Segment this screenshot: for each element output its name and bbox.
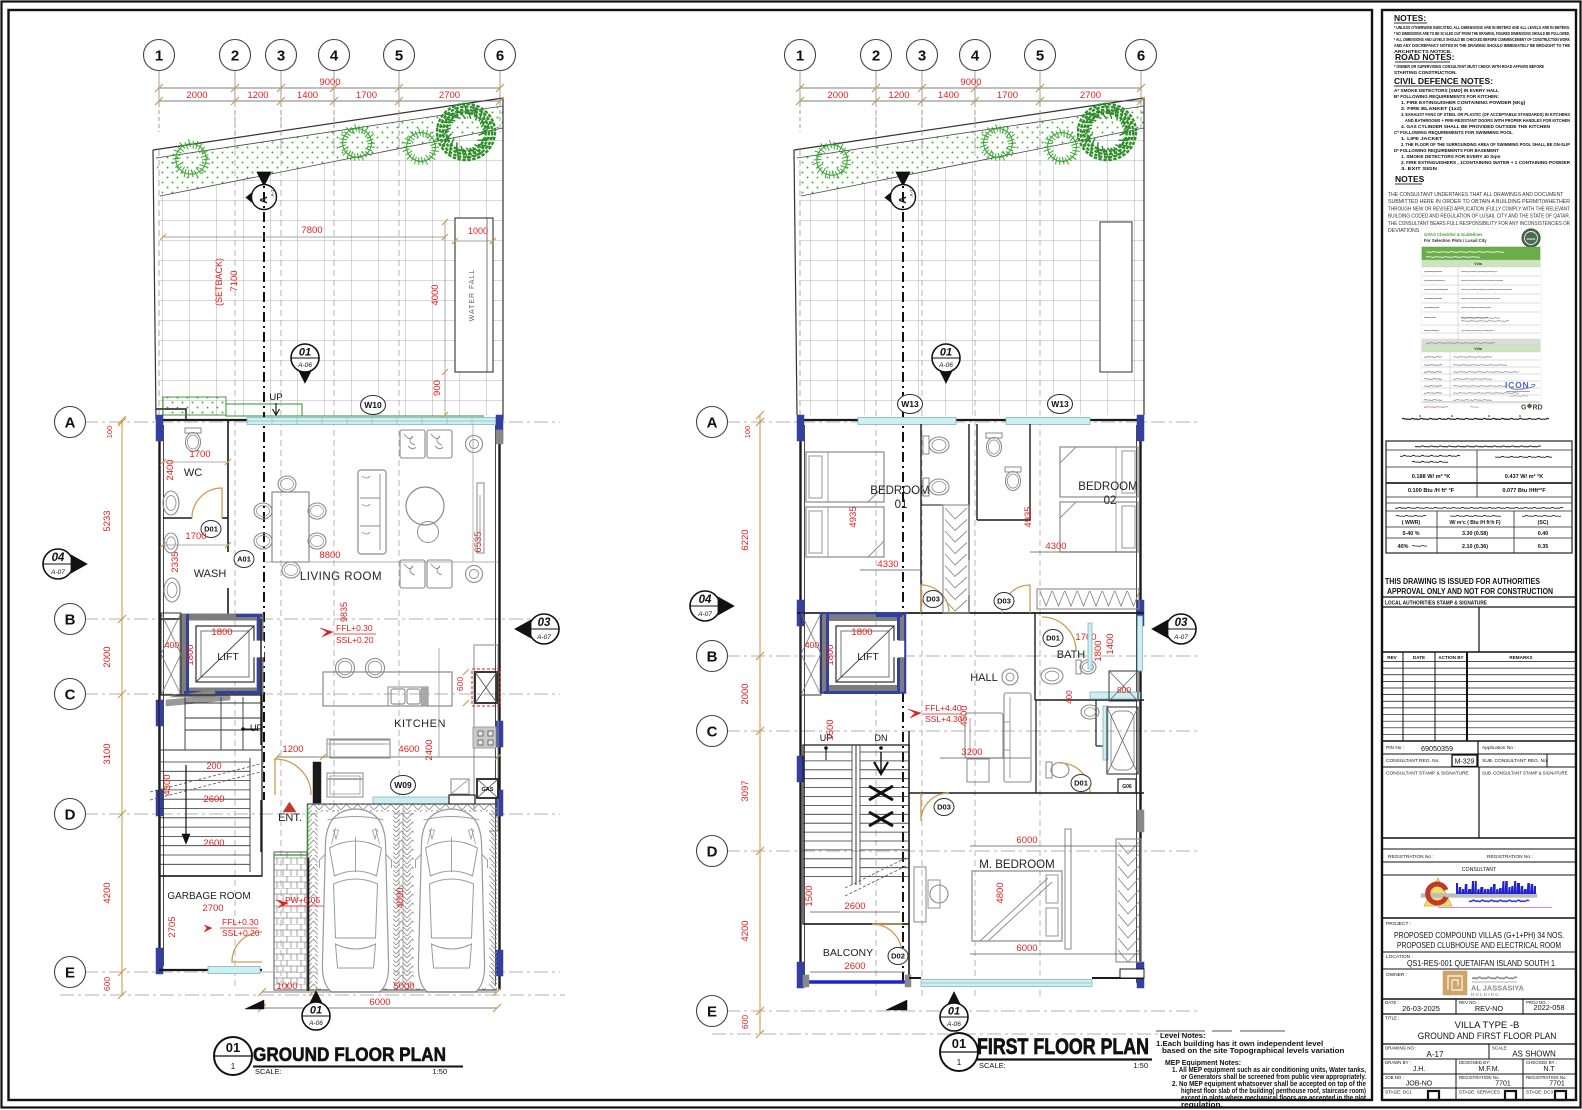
svg-text:01: 01 xyxy=(940,347,952,359)
svg-text:6000: 6000 xyxy=(1016,943,1037,954)
svg-text:4200: 4200 xyxy=(102,882,113,903)
svg-text:1: 1 xyxy=(957,1058,962,1067)
svg-text:9000: 9000 xyxy=(960,77,981,88)
svg-text:2. THE FLOOR OF THE SURROUNDI: 2. THE FLOOR OF THE SURROUNDING AREA OF … xyxy=(1401,142,1570,147)
svg-text:3200: 3200 xyxy=(961,747,982,758)
svg-text:TITLE :: TITLE : xyxy=(1385,1016,1399,1021)
svg-text:STAGE: DC1: STAGE: DC1 xyxy=(1385,1090,1412,1095)
svg-text:regulation.: regulation. xyxy=(1181,1100,1223,1109)
svg-text:2600: 2600 xyxy=(844,901,865,912)
svg-text:800: 800 xyxy=(1117,685,1131,695)
svg-text:69050359: 69050359 xyxy=(1421,744,1453,753)
svg-text:5000: 5000 xyxy=(393,981,414,992)
svg-text:C: C xyxy=(65,686,76,703)
svg-text:( WWR): ( WWR) xyxy=(1402,520,1421,526)
svg-text:A-06: A-06 xyxy=(938,362,953,369)
svg-text:GROUND FLOOR PLAN: GROUND FLOOR PLAN xyxy=(253,1044,446,1066)
svg-text:A* SMOKE DETECTORS [SMD] IN EV: A* SMOKE DETECTORS [SMD] IN EVERY HALL xyxy=(1394,88,1499,93)
svg-text:PIN No :: PIN No : xyxy=(1386,745,1404,751)
svg-text:4: 4 xyxy=(330,47,339,64)
svg-text:VILLA TYPE -B: VILLA TYPE -B xyxy=(1455,1020,1520,1031)
svg-text:7701: 7701 xyxy=(1495,1081,1511,1088)
svg-text:4300: 4300 xyxy=(1045,541,1066,552)
svg-text:2: 2 xyxy=(872,47,880,64)
svg-text:1800: 1800 xyxy=(851,627,872,638)
svg-text:GSAS: GSAS xyxy=(1527,237,1536,241)
svg-text:0.100 Btu /H ft² °F: 0.100 Btu /H ft² °F xyxy=(1408,487,1455,494)
svg-text:W09: W09 xyxy=(394,780,412,790)
svg-text:CHECKED BY :: CHECKED BY : xyxy=(1526,1060,1557,1065)
svg-text:A: A xyxy=(707,414,718,431)
svg-text:ENT.: ENT. xyxy=(278,812,302,824)
svg-text:PW+0.05: PW+0.05 xyxy=(285,895,320,905)
svg-text:Application No :: Application No : xyxy=(1482,745,1516,751)
svg-text:4800: 4800 xyxy=(995,882,1006,903)
svg-text:2022-058: 2022-058 xyxy=(1533,1003,1564,1012)
svg-text:1800: 1800 xyxy=(211,627,232,638)
svg-text:3: 3 xyxy=(277,47,285,64)
svg-text:JOB-NO: JOB-NO xyxy=(1406,1081,1433,1088)
svg-text:GARBAGE ROOM: GARBAGE ROOM xyxy=(167,891,250,902)
svg-text:M. BEDROOM: M. BEDROOM xyxy=(979,859,1054,871)
svg-text:1800: 1800 xyxy=(825,644,836,665)
svg-text:5233: 5233 xyxy=(102,510,113,531)
svg-text:* OWNER OR SUPERVISING CONSUL: * OWNER OR SUPERVISING CONSULTANT MUST C… xyxy=(1394,64,1544,69)
svg-text:SSL+4.30: SSL+4.30 xyxy=(925,714,963,724)
svg-text:7100: 7100 xyxy=(229,270,240,291)
svg-text:CONSULTANT STAMP & SIGNATURE: CONSULTANT STAMP & SIGNATURE xyxy=(1386,771,1469,777)
svg-text:RD: RD xyxy=(1533,405,1543,412)
svg-text:THE CONSULTANT BEARS FULL RESP: THE CONSULTANT BEARS FULL RESPONSIBILITY… xyxy=(1388,221,1570,227)
svg-text:BATH: BATH xyxy=(1057,649,1086,661)
svg-text:AND BATHROOMS + FIRE-RESISTANT: AND BATHROOMS + FIRE-RESISTANT DOORS WIT… xyxy=(1405,118,1571,123)
svg-text:WASH: WASH xyxy=(194,568,227,580)
svg-text:WATER FALL: WATER FALL xyxy=(469,269,476,322)
svg-text:W10: W10 xyxy=(364,400,382,410)
svg-text:0.40: 0.40 xyxy=(1538,531,1549,537)
svg-text:BUILDING CODED AND REGULATION: BUILDING CODED AND REGULATION OF LUSAIL … xyxy=(1388,214,1570,220)
svg-text:Villa: Villa xyxy=(1474,347,1483,351)
svg-text:1: 1 xyxy=(231,1062,236,1071)
svg-text:900: 900 xyxy=(432,380,443,396)
svg-text:1700: 1700 xyxy=(997,90,1018,101)
svg-text:* ALL DIMENSIONS AND LEVELS S: * ALL DIMENSIONS AND LEVELS SHOULD BE CH… xyxy=(1394,37,1570,42)
svg-text:A-07: A-07 xyxy=(50,569,65,576)
svg-text:8800: 8800 xyxy=(319,550,340,561)
svg-text:REGISTRATION No.: REGISTRATION No. xyxy=(1526,1075,1567,1080)
svg-text:2000: 2000 xyxy=(740,683,751,704)
svg-text:D03: D03 xyxy=(926,595,940,604)
svg-text:SSL+0.20: SSL+0.20 xyxy=(336,635,374,645)
svg-text:1. LIFE JACKET: 1. LIFE JACKET xyxy=(1401,136,1443,141)
svg-text:H O L D I N G: H O L D I N G xyxy=(1471,992,1499,997)
svg-text:ROAD NOTES:: ROAD NOTES: xyxy=(1395,52,1455,62)
svg-text:400: 400 xyxy=(1065,690,1074,704)
svg-text:4935: 4935 xyxy=(1023,506,1034,527)
svg-text:2. FIRE BLANKET (1x2): 2. FIRE BLANKET (1x2) xyxy=(1401,106,1462,111)
svg-text:2335: 2335 xyxy=(170,551,181,572)
svg-text:0.188 W/ m² °K: 0.188 W/ m² °K xyxy=(1412,473,1451,480)
svg-text:2700: 2700 xyxy=(439,90,460,101)
svg-text:03: 03 xyxy=(1175,617,1188,629)
svg-text:3. EXHAUST FANS OF STEEL OR P: 3. EXHAUST FANS OF STEEL OR PLASTIC (OF … xyxy=(1401,112,1570,117)
svg-text:J.H.: J.H. xyxy=(1413,1066,1426,1073)
svg-text:1000: 1000 xyxy=(276,981,297,992)
svg-text:2600: 2600 xyxy=(844,961,865,972)
svg-text:3.30 (0.58): 3.30 (0.58) xyxy=(1462,531,1488,537)
svg-text:SSL+0.20: SSL+0.20 xyxy=(222,928,260,938)
svg-text:For Selection Plots / Lusail C: For Selection Plots / Lusail City xyxy=(1424,238,1487,243)
svg-text:600: 600 xyxy=(455,677,465,691)
svg-text:PROJECT :: PROJECT : xyxy=(1386,921,1411,927)
svg-text:2.10 (0.36): 2.10 (0.36) xyxy=(1462,544,1488,550)
svg-text:1. SMOKE DETECTORS FOR EVERY: 1. SMOKE DETECTORS FOR EVERY 40 Sqm xyxy=(1401,154,1500,159)
svg-text:4. GAS CYLINDER SHALL BE PROV: 4. GAS CYLINDER SHALL BE PROVIDED OUTSID… xyxy=(1401,124,1551,129)
svg-text:SUB. CONSULTANT STAMP & SIGNAT: SUB. CONSULTANT STAMP & SIGNATURE xyxy=(1482,771,1568,777)
svg-text:5: 5 xyxy=(1036,47,1044,64)
svg-text:D* FOLLOWING REQUIREMENTS FOR: D* FOLLOWING REQUIREMENTS FOR BASEMENT xyxy=(1394,148,1499,153)
svg-text:B* FOLLOWING REQUIREMENTS FOR: B* FOLLOWING REQUIREMENTS FOR KITCHEN: xyxy=(1394,94,1499,99)
svg-text:1800: 1800 xyxy=(1093,640,1104,661)
svg-text:2700: 2700 xyxy=(202,903,223,914)
svg-text:KITCHEN: KITCHEN xyxy=(394,718,446,730)
svg-text:G06: G06 xyxy=(1122,784,1132,790)
svg-text:N.T: N.T xyxy=(1543,1066,1555,1073)
svg-text:6220: 6220 xyxy=(740,529,751,550)
svg-text:2600: 2600 xyxy=(203,838,224,849)
svg-text:M-329: M-329 xyxy=(1455,759,1475,766)
svg-text:M.F.M.: M.F.M. xyxy=(1479,1066,1500,1073)
svg-text:4935: 4935 xyxy=(848,506,859,527)
svg-text:03: 03 xyxy=(538,617,551,629)
svg-text:04: 04 xyxy=(52,552,65,564)
svg-text:B: B xyxy=(707,648,718,665)
svg-text:6000: 6000 xyxy=(369,997,390,1008)
svg-text:REV: REV xyxy=(1387,655,1397,660)
svg-text:2705: 2705 xyxy=(167,916,178,937)
svg-text:2000: 2000 xyxy=(102,646,113,667)
svg-text:BEDROOM: BEDROOM xyxy=(870,485,929,497)
svg-text:HALL: HALL xyxy=(970,672,998,684)
svg-text:6000: 6000 xyxy=(1016,835,1037,846)
svg-text:GAS: GAS xyxy=(482,787,494,793)
svg-text:DEVIATIONS: DEVIATIONS xyxy=(1388,228,1419,234)
svg-text:THIS DRAWING IS ISSUED FOR AUT: THIS DRAWING IS ISSUED FOR AUTHORITIES xyxy=(1385,577,1540,586)
svg-text:A-7: A-7 xyxy=(909,189,914,197)
svg-text:D01: D01 xyxy=(1074,779,1088,788)
svg-text:7701: 7701 xyxy=(1549,1081,1565,1088)
svg-text:NOTES:: NOTES: xyxy=(1394,13,1426,23)
svg-text:4000: 4000 xyxy=(395,887,406,908)
svg-text:A-7: A-7 xyxy=(270,189,275,197)
svg-text:REV-NO: REV-NO xyxy=(1475,1004,1504,1013)
svg-text:2400: 2400 xyxy=(165,459,176,480)
svg-text:BEDROOM: BEDROOM xyxy=(1078,481,1137,493)
svg-text:(SC): (SC) xyxy=(1538,520,1549,526)
svg-text:PROPOSED COMPOUND VILLAS (G+1+: PROPOSED COMPOUND VILLAS (G+1+PH) 34 NOS… xyxy=(1394,931,1564,940)
svg-text:NOTES: NOTES xyxy=(1395,174,1425,184)
svg-text:0.437 W/ m² °K: 0.437 W/ m² °K xyxy=(1505,473,1544,480)
svg-text:SCALE:: SCALE: xyxy=(979,1061,1006,1070)
svg-text:CIVIL DEFENCE NOTES:: CIVIL DEFENCE NOTES: xyxy=(1394,76,1493,86)
svg-text:01: 01 xyxy=(299,347,311,359)
svg-text:2600: 2600 xyxy=(203,794,224,805)
svg-text:2000: 2000 xyxy=(186,90,207,101)
svg-text:DESIGNED BY:: DESIGNED BY: xyxy=(1459,1060,1490,1065)
svg-text:3100: 3100 xyxy=(102,743,113,764)
svg-text:1400: 1400 xyxy=(938,90,959,101)
svg-text:LIFT: LIFT xyxy=(217,651,239,663)
svg-text:1700: 1700 xyxy=(185,531,206,542)
svg-text:01: 01 xyxy=(895,499,908,511)
svg-text:* NO DIMENSIONS ARE TO BE SCA: * NO DIMENSIONS ARE TO BE SCALED OUT FRO… xyxy=(1394,31,1570,36)
svg-text:1700: 1700 xyxy=(189,449,210,460)
svg-text:STAGE: SERVICES: STAGE: SERVICES xyxy=(1459,1090,1500,1095)
svg-text:FIRST FLOOR PLAN: FIRST FLOOR PLAN xyxy=(977,1034,1149,1059)
svg-text:W13: W13 xyxy=(1051,399,1069,409)
svg-text:1400: 1400 xyxy=(297,90,318,101)
svg-text:3: 3 xyxy=(918,47,926,64)
svg-text:REGISTRATION No.: REGISTRATION No. xyxy=(1459,1075,1500,1080)
svg-text:2. FIRE EXTINGUISHERS , 1CONT: 2. FIRE EXTINGUISHERS , 1CONTAINING WATE… xyxy=(1401,160,1571,165)
svg-text:AND ANY DISCREPANCY NOTED IN T: AND ANY DISCREPANCY NOTED IN THE DRAWING… xyxy=(1394,43,1570,48)
svg-text:D02: D02 xyxy=(891,952,905,961)
svg-text:SCALE:: SCALE: xyxy=(255,1067,282,1076)
svg-text:6535: 6535 xyxy=(473,531,484,552)
svg-text:SCALE:: SCALE: xyxy=(1492,1046,1508,1051)
svg-text:1200: 1200 xyxy=(888,90,909,101)
svg-text:100: 100 xyxy=(743,426,752,439)
svg-text:C* FOLLOWING REQUIREMENTS FOR: C* FOLLOWING REQUIREMENTS FOR SWIMMING P… xyxy=(1394,130,1513,135)
svg-text:A-06: A-06 xyxy=(946,1021,961,1028)
svg-text:A-06: A-06 xyxy=(297,362,312,369)
svg-text:1:50: 1:50 xyxy=(1133,1061,1148,1070)
svg-text:PROPOSED CLUBHOUSE AND ELECTRI: PROPOSED CLUBHOUSE AND ELECTRICAL ROOM xyxy=(1397,941,1561,950)
svg-text:1:50: 1:50 xyxy=(432,1067,447,1076)
svg-text:0.35: 0.35 xyxy=(1538,544,1549,550)
svg-text:1200: 1200 xyxy=(282,744,303,755)
svg-text:THROUGH NEW OR REVISED APPLICA: THROUGH NEW OR REVISED APPLICATION )FULL… xyxy=(1388,206,1570,212)
svg-text:DN: DN xyxy=(875,733,888,743)
svg-text:LIVING ROOM: LIVING ROOM xyxy=(300,571,382,583)
svg-text:AS SHOWN: AS SHOWN xyxy=(1512,1050,1556,1059)
svg-text:2000: 2000 xyxy=(827,90,848,101)
svg-text:D03: D03 xyxy=(997,597,1011,606)
svg-text:4330: 4330 xyxy=(877,559,898,570)
svg-text:W/ m²c ( Btu /H ft²h F): W/ m²c ( Btu /H ft²h F) xyxy=(1449,520,1500,526)
svg-text:THE CONSULTANT UNDERTAKES THAT: THE CONSULTANT UNDERTAKES THAT ALL DRAWI… xyxy=(1388,192,1564,198)
svg-text:FFL+4.40: FFL+4.40 xyxy=(925,703,962,713)
svg-text:01: 01 xyxy=(310,1005,322,1017)
svg-text:JOB NO :: JOB NO : xyxy=(1385,1075,1404,1080)
svg-text:2: 2 xyxy=(231,47,239,64)
svg-text:1500: 1500 xyxy=(804,885,815,906)
svg-text:DATE: DATE xyxy=(1413,655,1425,660)
svg-text:40%: 40% xyxy=(1398,544,1409,550)
svg-text:1: 1 xyxy=(796,47,804,64)
svg-text:600: 600 xyxy=(740,1015,750,1029)
svg-text:UP: UP xyxy=(269,392,282,403)
svg-text:E: E xyxy=(707,1003,717,1020)
svg-text:Villa: Villa xyxy=(1474,262,1483,266)
svg-text:1800: 1800 xyxy=(185,644,196,665)
svg-text:4300: 4300 xyxy=(162,774,173,795)
svg-text:1200: 1200 xyxy=(247,90,268,101)
svg-text:LOCAL AUTHORITIES STAMP & SIGN: LOCAL AUTHORITIES STAMP & SIGNATURE xyxy=(1385,601,1487,607)
svg-text:APPROVAL ONLY AND NOT FOR CONS: APPROVAL ONLY AND NOT FOR CONSTRUCTION xyxy=(1387,587,1553,596)
svg-text:9835: 9835 xyxy=(339,602,349,622)
svg-text:01: 01 xyxy=(952,1036,966,1051)
svg-text:D: D xyxy=(65,806,76,823)
svg-text:4000: 4000 xyxy=(430,284,441,305)
svg-text:02: 02 xyxy=(1104,495,1117,507)
svg-text:D01: D01 xyxy=(1046,634,1060,643)
svg-text:A: A xyxy=(65,414,76,431)
svg-text:1400: 1400 xyxy=(1105,633,1116,654)
svg-text:CONSULTANT REG. No.: CONSULTANT REG. No. xyxy=(1386,758,1440,764)
svg-text:WC: WC xyxy=(184,467,202,479)
svg-text:STARTING CONSTRUCTION.: STARTING CONSTRUCTION. xyxy=(1394,70,1457,75)
svg-text:A-07: A-07 xyxy=(697,611,712,618)
svg-text:D: D xyxy=(707,843,718,860)
svg-text:100: 100 xyxy=(105,426,114,439)
svg-text:GROUND AND FIRST FLOOR PLAN: GROUND AND FIRST FLOOR PLAN xyxy=(1418,1031,1557,1042)
svg-text:A-17: A-17 xyxy=(1427,1050,1444,1059)
svg-text:D03: D03 xyxy=(937,803,951,812)
svg-text:A01: A01 xyxy=(237,555,251,564)
svg-text:1000: 1000 xyxy=(468,226,488,236)
svg-text:OWNER :: OWNER : xyxy=(1386,972,1407,978)
svg-text:(SETBACK): (SETBACK) xyxy=(214,258,224,306)
svg-text:3. EXIT SIGN: 3. EXIT SIGN xyxy=(1401,166,1438,171)
svg-text:C: C xyxy=(707,723,718,740)
svg-text:QS1-RES-001 QUETAIFAN ISLAND S: QS1-RES-001 QUETAIFAN ISLAND SOUTH 1 xyxy=(1407,959,1555,968)
svg-text:SUB. CONSULTANT REG. No.: SUB. CONSULTANT REG. No. xyxy=(1482,758,1548,764)
svg-text:01: 01 xyxy=(226,1040,240,1055)
svg-text:BALCONY: BALCONY xyxy=(823,947,873,959)
svg-text:CONSULTANT: CONSULTANT xyxy=(1462,867,1497,873)
svg-text:A-07: A-07 xyxy=(536,634,551,641)
svg-text:200: 200 xyxy=(206,761,221,771)
svg-text:W13: W13 xyxy=(901,399,919,409)
svg-text:E: E xyxy=(65,964,75,981)
svg-text:26-03-2025: 26-03-2025 xyxy=(1402,1004,1440,1013)
svg-text:LIFT: LIFT xyxy=(857,651,879,663)
svg-text:6: 6 xyxy=(496,47,504,64)
svg-text:3097: 3097 xyxy=(740,780,751,801)
svg-text:REGISTRATION No :: REGISTRATION No : xyxy=(1388,854,1434,860)
svg-text:* UNLESS OTHERWISE INDICATED,: * UNLESS OTHERWISE INDICATED, ALL DIMENS… xyxy=(1394,25,1570,30)
svg-text:0.077 Btu /Hft²°F: 0.077 Btu /Hft²°F xyxy=(1502,487,1546,494)
svg-text:REMARKS: REMARKS xyxy=(1509,655,1532,660)
svg-text:based on the site Topographica: based on the site Topographical levels v… xyxy=(1162,1046,1345,1055)
svg-text:04: 04 xyxy=(699,594,712,606)
svg-text:B: B xyxy=(65,611,76,628)
svg-text:REGISTRATION No :: REGISTRATION No : xyxy=(1487,854,1533,860)
svg-text:FFL+0.30: FFL+0.30 xyxy=(336,623,373,633)
svg-text:1700: 1700 xyxy=(356,90,377,101)
svg-text:5-40 %: 5-40 % xyxy=(1402,531,1419,537)
svg-text:DATE :: DATE : xyxy=(1385,1000,1399,1005)
svg-text:1500: 1500 xyxy=(825,719,836,740)
svg-text:DRAWING NO :: DRAWING NO : xyxy=(1385,1046,1416,1051)
svg-text:STAGE: DC3: STAGE: DC3 xyxy=(1526,1090,1553,1095)
svg-text:1: 1 xyxy=(155,47,163,64)
svg-text:2700: 2700 xyxy=(1080,90,1101,101)
svg-text:A-06: A-06 xyxy=(308,1020,323,1027)
svg-text:4200: 4200 xyxy=(740,920,751,941)
svg-text:9000: 9000 xyxy=(319,77,340,88)
svg-text:DRAWN BY :: DRAWN BY : xyxy=(1385,1060,1411,1065)
svg-text:600: 600 xyxy=(102,977,112,991)
svg-text:G: G xyxy=(1521,405,1527,412)
svg-text:01: 01 xyxy=(948,1006,960,1018)
svg-text:SUBMITTED HERE IN ORDER TO OBT: SUBMITTED HERE IN ORDER TO OBTAIN A BUIL… xyxy=(1388,199,1570,205)
svg-text:5: 5 xyxy=(395,47,403,64)
svg-text:1. FIRE EXTINGUISHER CONTAINI: 1. FIRE EXTINGUISHER CONTAINING POWDER (… xyxy=(1401,100,1526,105)
svg-text:GSAS Checklist & Guidelines: GSAS Checklist & Guidelines xyxy=(1424,232,1483,237)
svg-text:4600: 4600 xyxy=(398,744,419,755)
svg-text:ACTION BY: ACTION BY xyxy=(1438,655,1463,660)
svg-text:6: 6 xyxy=(1137,47,1145,64)
svg-text:4: 4 xyxy=(971,47,980,64)
svg-text:A-07: A-07 xyxy=(1173,634,1188,641)
svg-text:7800: 7800 xyxy=(301,225,322,236)
svg-text:FFL+0.30: FFL+0.30 xyxy=(222,917,259,927)
